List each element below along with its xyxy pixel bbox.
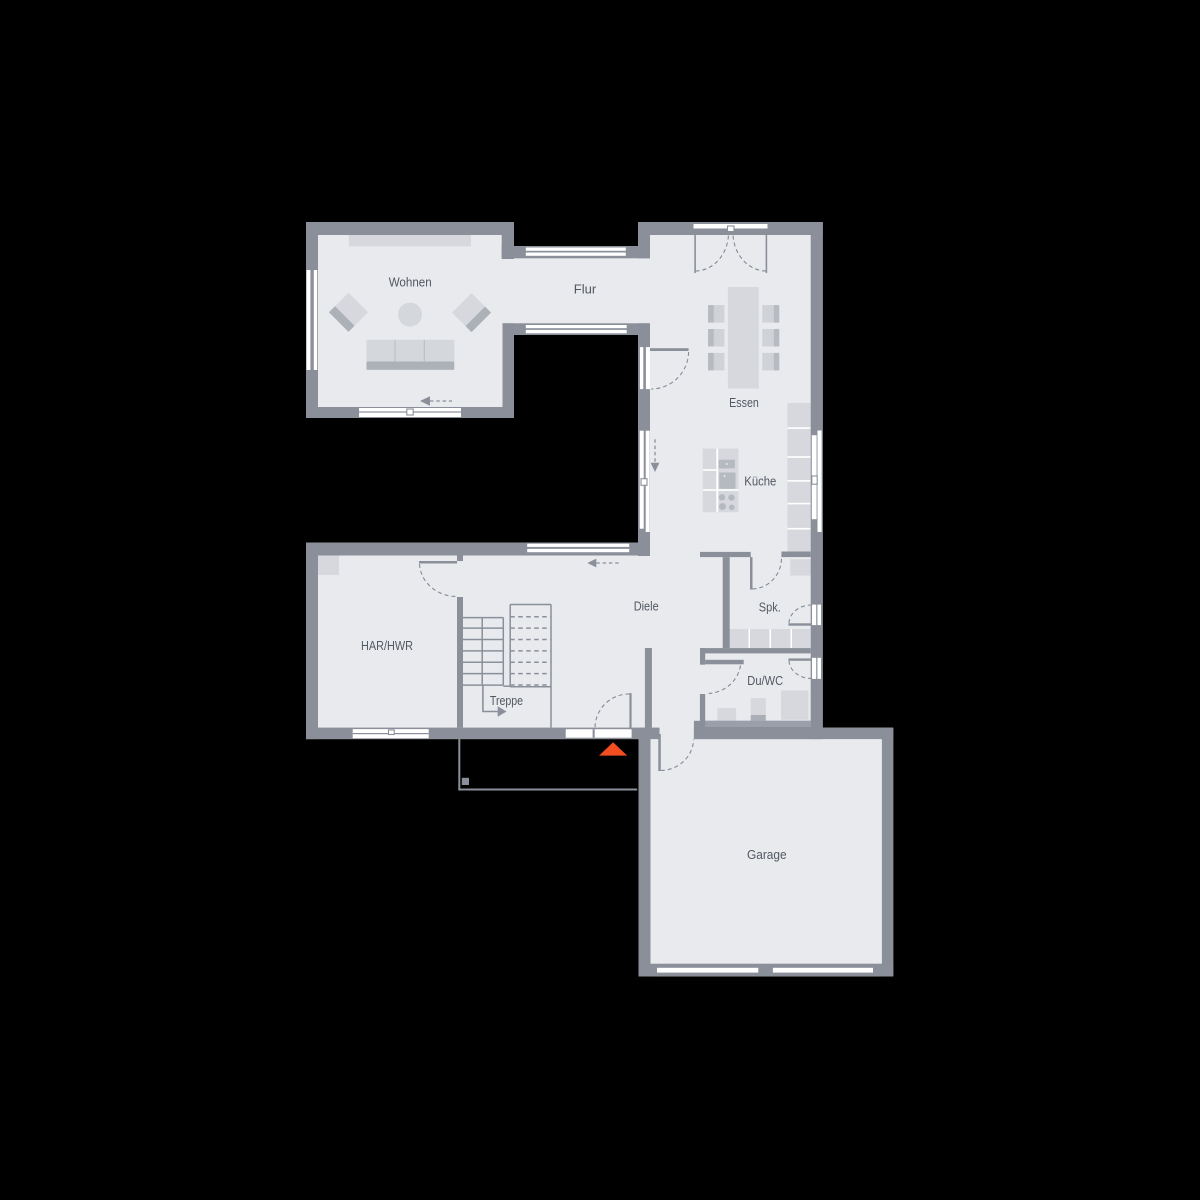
svg-text:Essen: Essen [729, 396, 759, 410]
svg-text:HAR/HWR: HAR/HWR [361, 639, 413, 653]
svg-text:Spk.: Spk. [759, 601, 781, 615]
svg-text:Garage: Garage [747, 848, 787, 862]
svg-text:Küche: Küche [744, 474, 776, 488]
svg-text:Treppe: Treppe [490, 694, 523, 708]
svg-text:Diele: Diele [634, 600, 659, 614]
svg-text:Du/WC: Du/WC [747, 674, 783, 688]
svg-text:Wohnen: Wohnen [389, 275, 432, 289]
svg-text:Flur: Flur [574, 282, 597, 296]
